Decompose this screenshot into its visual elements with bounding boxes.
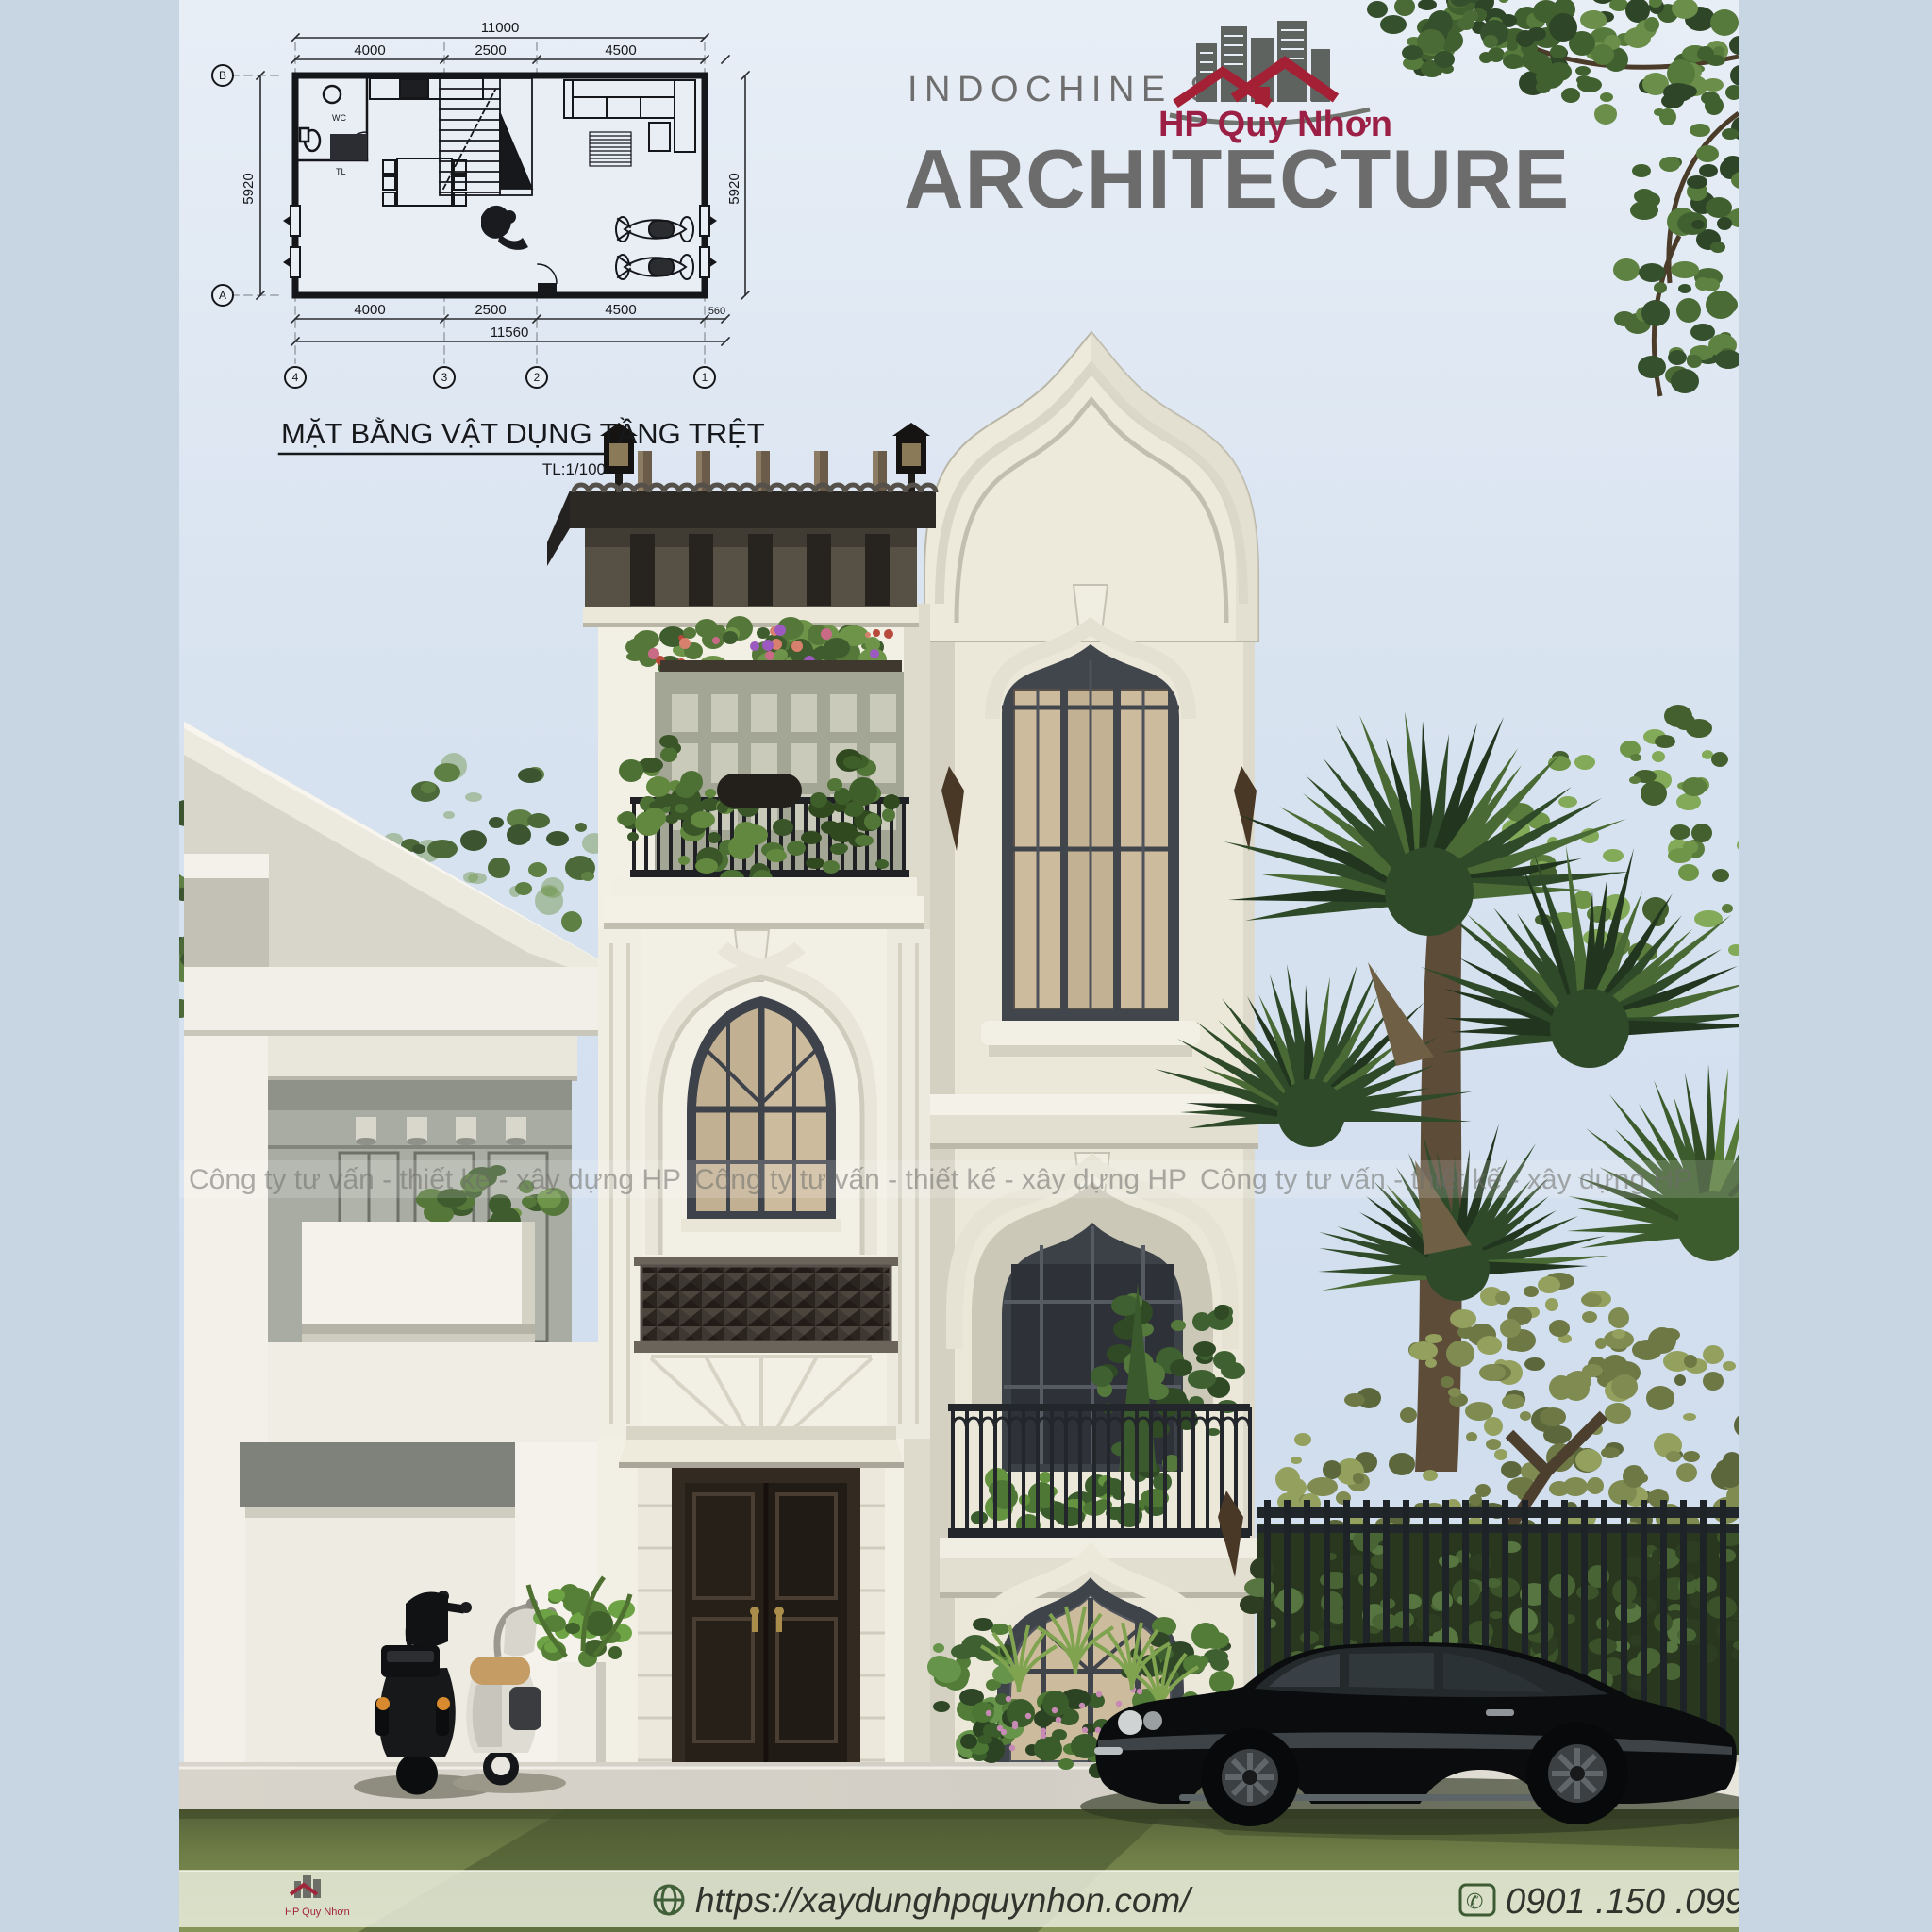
svg-text:HP Quy Nhơn: HP Quy Nhơn (1158, 105, 1392, 144)
svg-text:Công ty tư vấn - thiết kế - xâ: Công ty tư vấn - thiết kế - xây dựng HP (189, 1164, 681, 1195)
svg-text:TL:1/100: TL:1/100 (542, 460, 606, 478)
svg-text:2: 2 (534, 371, 541, 384)
svg-text:✆: ✆ (1466, 1890, 1483, 1913)
svg-text:3: 3 (441, 371, 448, 384)
svg-text:4: 4 (292, 371, 299, 384)
svg-text:WC: WC (332, 113, 346, 123)
svg-text:11560: 11560 (491, 325, 529, 341)
svg-text:5920: 5920 (726, 173, 742, 204)
svg-text:2500: 2500 (475, 302, 506, 318)
svg-text:4000: 4000 (354, 42, 385, 58)
svg-text:HP Quy Nhơn: HP Quy Nhơn (285, 1907, 350, 1918)
svg-text:4500: 4500 (605, 42, 636, 58)
svg-text:1: 1 (702, 371, 708, 384)
svg-text:2500: 2500 (475, 42, 506, 58)
svg-text:0901 .150 .099: 0901 .150 .099 (1506, 1882, 1745, 1922)
svg-text:4500: 4500 (605, 302, 636, 318)
svg-text:A: A (219, 289, 226, 302)
svg-text:Công ty tư vấn - thiết kế - xâ: Công ty tư vấn - thiết kế - xây dựng HP (1200, 1164, 1692, 1195)
svg-text:TL: TL (336, 167, 346, 176)
svg-text:B: B (219, 69, 226, 82)
svg-text:MẶT BẰNG VẬT DỤNG TẦNG TRỆT: MẶT BẰNG VẬT DỤNG TẦNG TRỆT (281, 417, 765, 450)
svg-text:560: 560 (708, 306, 725, 317)
svg-text:Công ty tư vấn - thiết kế - xâ: Công ty tư vấn - thiết kế - xây dựng HP (694, 1164, 1187, 1195)
svg-text:11000: 11000 (481, 20, 520, 36)
svg-text:5920: 5920 (241, 173, 257, 204)
svg-text:4000: 4000 (354, 302, 385, 318)
svg-text:https://xaydunghpquynhon.com/: https://xaydunghpquynhon.com/ (695, 1881, 1193, 1920)
svg-text:ARCHITECTURE: ARCHITECTURE (904, 132, 1570, 225)
